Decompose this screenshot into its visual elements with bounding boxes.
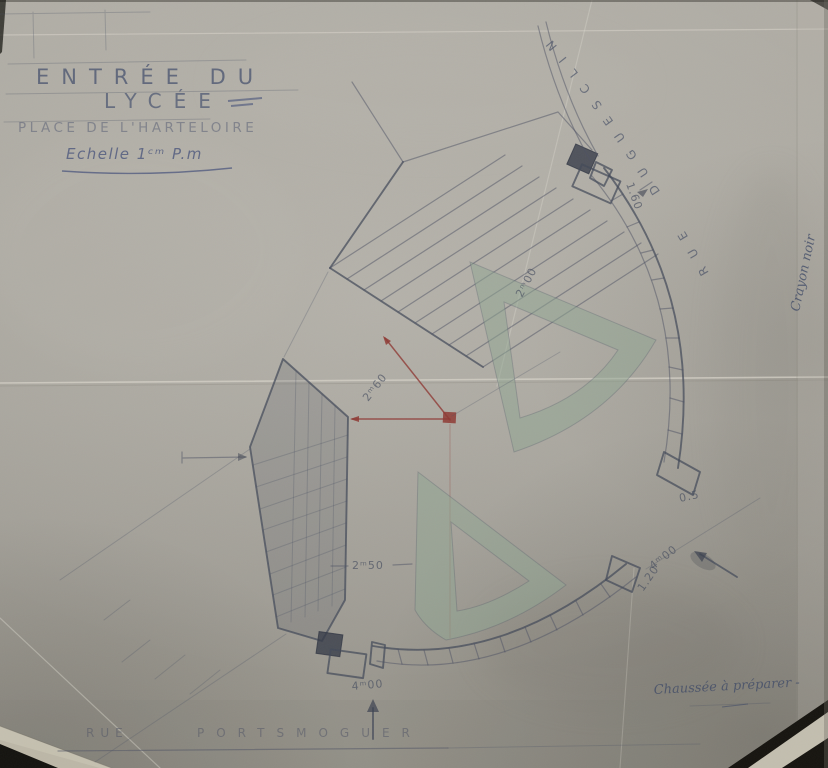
- photographed-pencil-plan: ENTRÉE DU LYCÉE PLACE DE L'HARTELOIRE Ec…: [0, 0, 828, 768]
- plan-canvas: ENTRÉE DU LYCÉE PLACE DE L'HARTELOIRE Ec…: [0, 0, 828, 768]
- photo-grain-overlay: [0, 0, 828, 768]
